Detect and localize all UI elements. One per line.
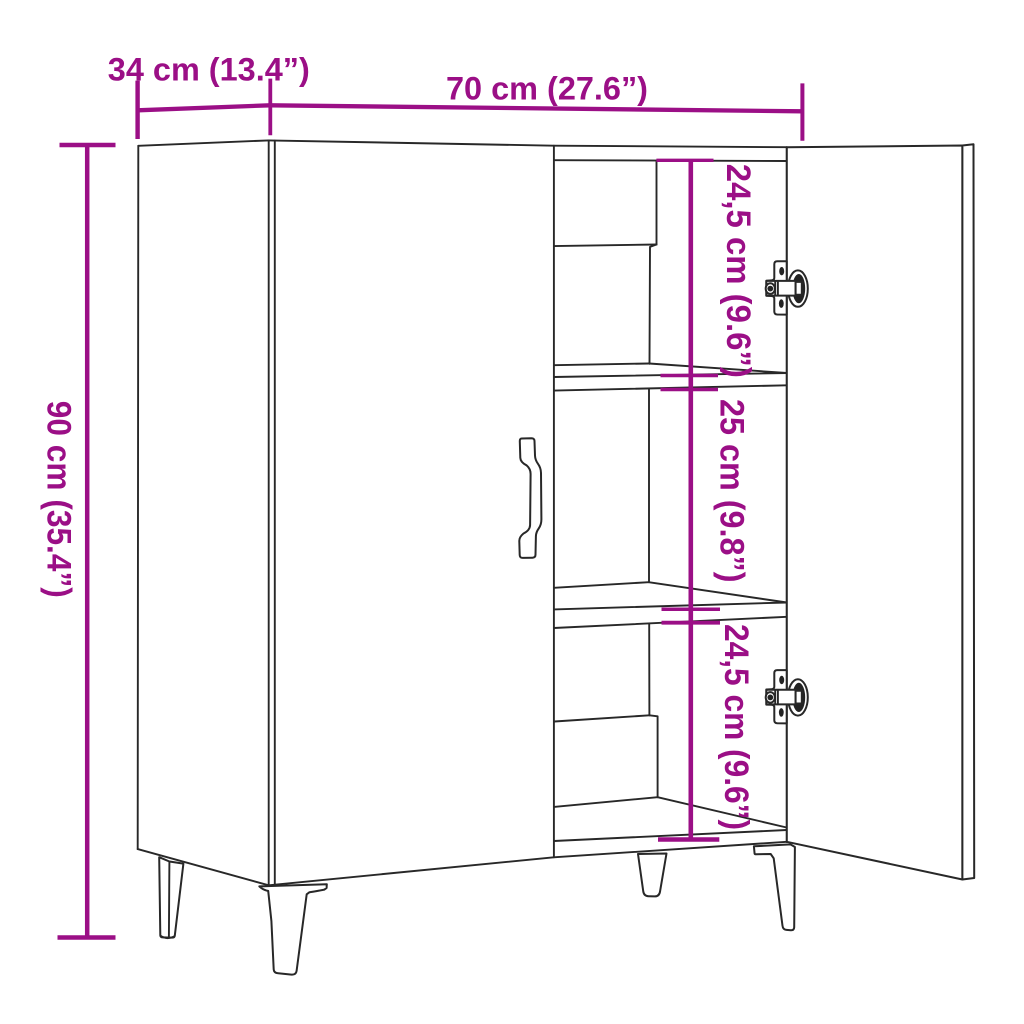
svg-text:90 cm (35.4”): 90 cm (35.4”)	[40, 401, 78, 598]
svg-text:70 cm (27.6”): 70 cm (27.6”)	[446, 71, 648, 107]
svg-text:24,5 cm (9.6”): 24,5 cm (9.6”)	[717, 624, 755, 830]
svg-text:34 cm (13.4”): 34 cm (13.4”)	[108, 51, 310, 87]
svg-text:24,5 cm (9.6”): 24,5 cm (9.6”)	[719, 164, 757, 378]
svg-text:25 cm (9.8”): 25 cm (9.8”)	[712, 399, 750, 583]
